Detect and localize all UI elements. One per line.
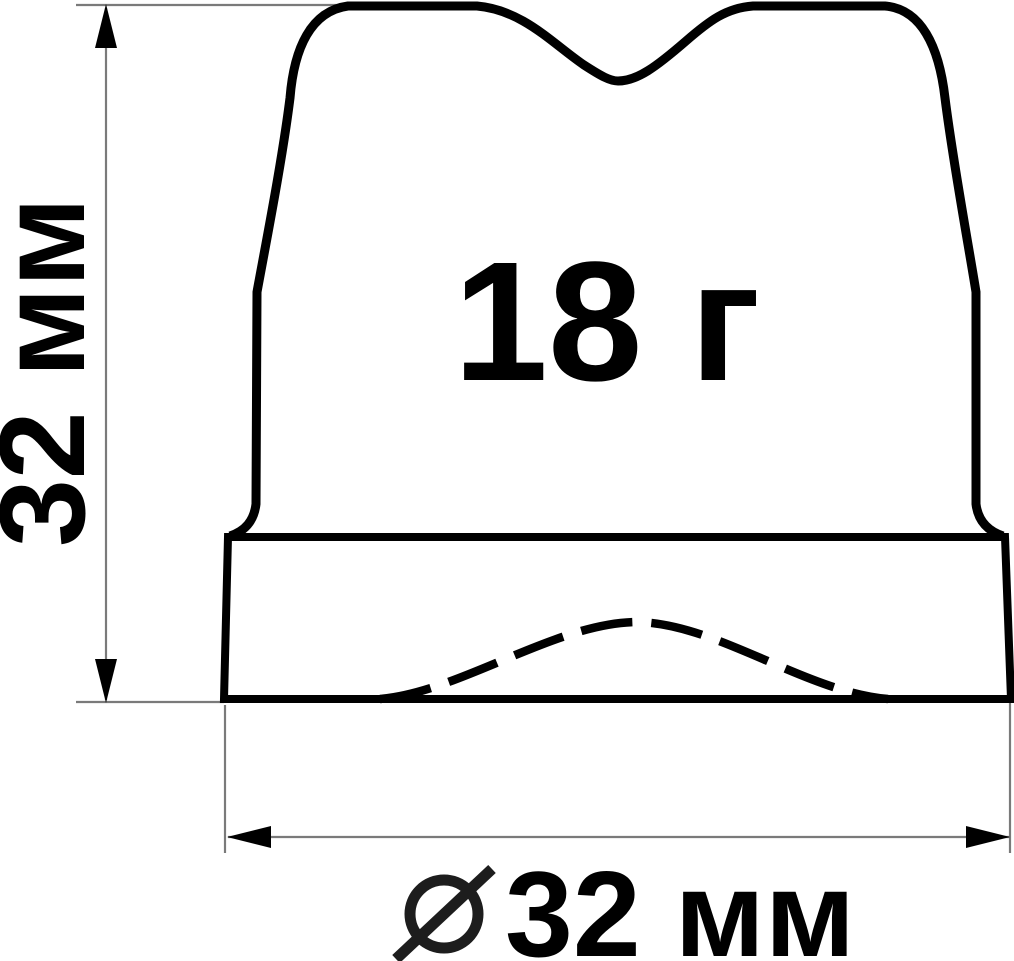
arrow-left-icon bbox=[227, 826, 271, 848]
technical-drawing-page: 18 г 32 мм 32 мм bbox=[0, 0, 1014, 961]
arrow-up-icon bbox=[95, 4, 117, 48]
diameter-dimension-label: 32 мм bbox=[505, 846, 855, 961]
arrow-down-icon bbox=[95, 659, 117, 703]
arrow-right-icon bbox=[966, 826, 1010, 848]
dimension-line-group bbox=[76, 5, 1010, 853]
weight-label: 18 г bbox=[453, 227, 760, 417]
base-flange-outline bbox=[224, 537, 1011, 699]
hidden-dome-dashed-line bbox=[380, 622, 888, 699]
arrowhead-group bbox=[95, 4, 1010, 848]
technical-drawing-canvas: 18 г 32 мм 32 мм bbox=[0, 0, 1014, 961]
diameter-symbol-icon bbox=[396, 869, 492, 959]
height-dimension-label: 32 мм bbox=[0, 197, 110, 547]
